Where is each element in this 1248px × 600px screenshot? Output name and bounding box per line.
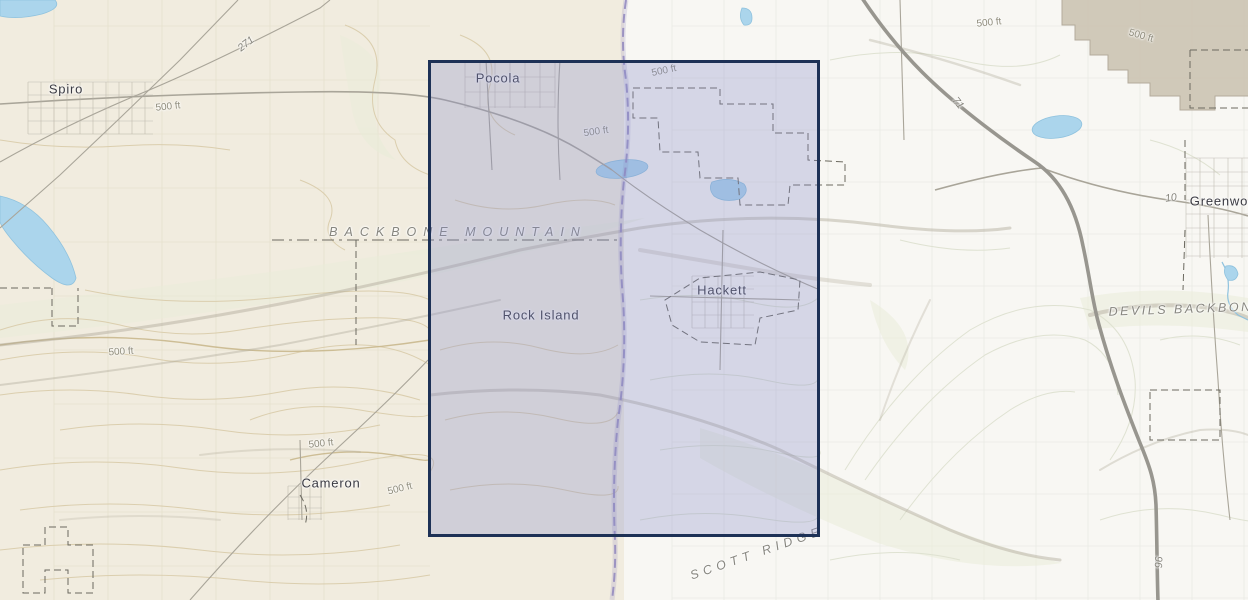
map-viewport[interactable]: SpiroPocolaRock IslandHackettCameronGree… [0, 0, 1248, 600]
selection-rectangle[interactable] [428, 60, 820, 537]
